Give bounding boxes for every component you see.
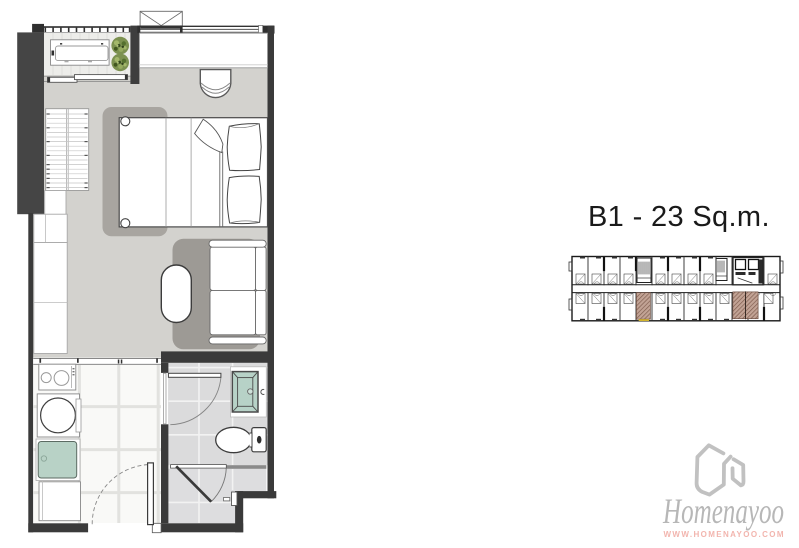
svg-text:B1 - 23 Sq.m.: B1 - 23 Sq.m. [588, 201, 770, 233]
svg-text:WWW.HOMENAYOO.COM: WWW.HOMENAYOO.COM [664, 530, 784, 539]
svg-text:Homenayoo: Homenayoo [662, 491, 784, 531]
